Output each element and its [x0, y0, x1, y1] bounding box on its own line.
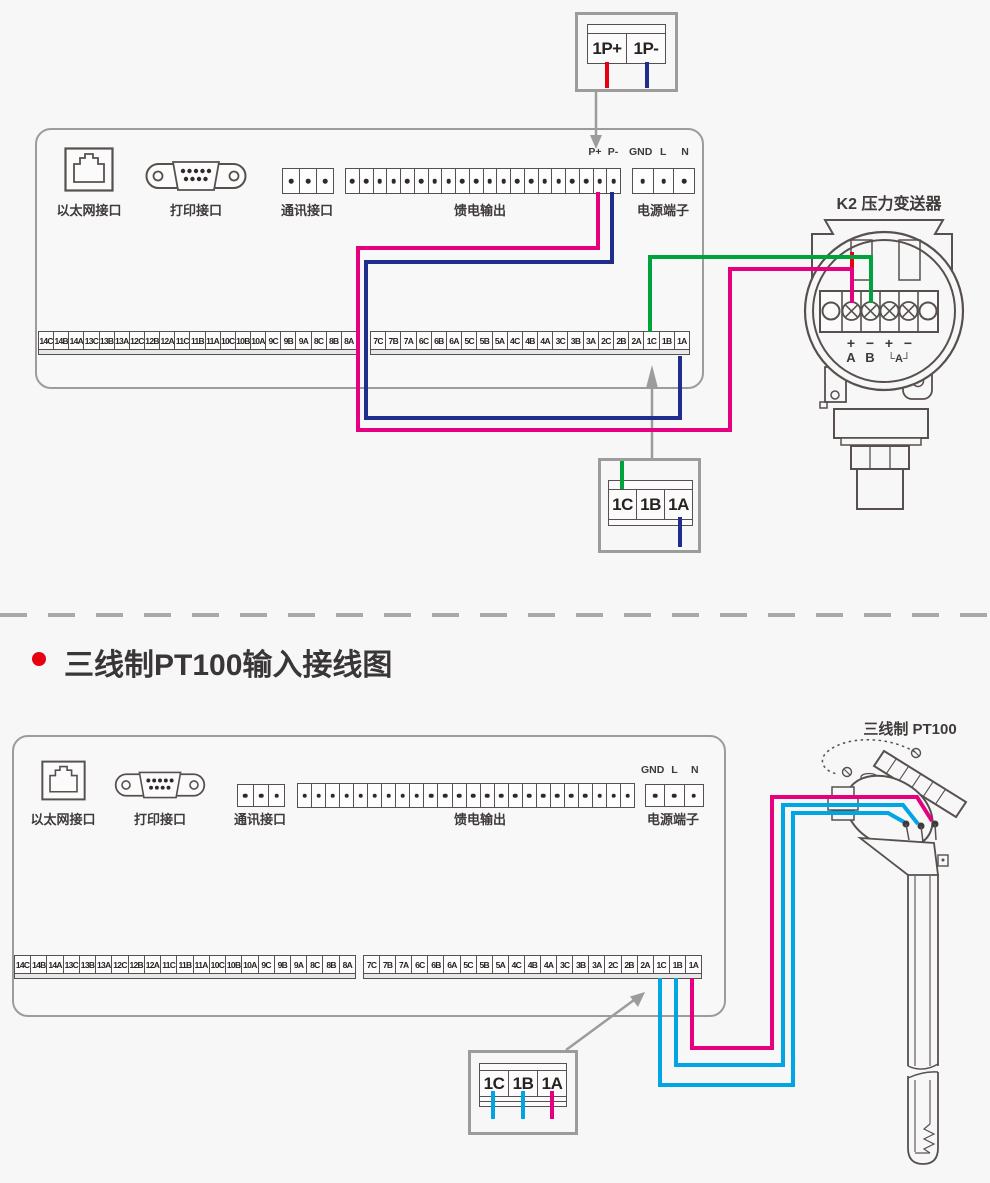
terminal-cell: 10A: [242, 956, 258, 973]
section-title: 三线制PT100输入接线图: [64, 640, 392, 684]
terminal-dot-cell: [410, 784, 424, 807]
channel1-box-table: 1C1B1A: [479, 1063, 567, 1107]
terminal-cell: 10A: [251, 332, 266, 349]
terminal-label-cell: 1A: [665, 490, 692, 519]
terminal-dot-cell: [424, 784, 438, 807]
terminal-cell: 3A: [589, 956, 605, 973]
terminal-cell: 5C: [461, 956, 477, 973]
power-terminal-header: GND L N: [641, 764, 705, 776]
neutral-label: N: [685, 764, 705, 776]
strip-foot: [371, 349, 689, 354]
channel-terminal-strip-right-top: 7C7B7A6C6B6A5C5B5A4C4B4A3C3B3A2C2B2A1C1B…: [370, 331, 690, 355]
terminal-cell: 10C: [210, 956, 226, 973]
polarity-label: −: [904, 335, 912, 351]
terminal-cell: 4A: [538, 332, 553, 349]
terminal-dot-cell: [593, 784, 607, 807]
terminal-label-cell: 1P+: [588, 34, 627, 63]
terminal-dot-cell: [470, 169, 484, 193]
signal-box-table: 1P+1P-: [587, 24, 666, 64]
terminal-cell: 13A: [115, 332, 130, 349]
transmitter-screw-slots: [845, 305, 915, 318]
terminal-cell: 4B: [523, 332, 538, 349]
terminal-cell: 7A: [396, 956, 412, 973]
transmitter-screw-terminals: [843, 302, 918, 320]
terminal-cell: 7B: [386, 332, 401, 349]
terminal-dot-cell: [665, 785, 684, 806]
terminal-dot-cell: [674, 169, 694, 193]
terminal-cell: 12B: [145, 332, 160, 349]
power-terminal-label: 电源端子: [613, 200, 713, 219]
comm-terminal-block-bottom: [237, 784, 285, 807]
terminal-cell: 3B: [573, 956, 589, 973]
terminal-cell: 9A: [291, 956, 307, 973]
pt100-sensor-drawing: [822, 740, 966, 1164]
terminal-dot-cell: [354, 784, 368, 807]
terminal-dot-cell: [537, 784, 551, 807]
terminal-cell: 10B: [236, 332, 251, 349]
terminal-dot-cell: [387, 169, 401, 193]
terminal-cell: 8C: [312, 332, 327, 349]
terminal-cell: 13C: [84, 332, 99, 349]
terminal-dot-cell: [298, 784, 312, 807]
terminal-dot-cell: [646, 785, 665, 806]
terminal-cell: 12B: [129, 956, 145, 973]
terminal-cell: 4C: [509, 956, 525, 973]
terminal-dot-cell: [552, 169, 566, 193]
terminal-cell: 10C: [221, 332, 236, 349]
strip-foot: [364, 973, 701, 978]
channel1-box-cells: 1C1B1A: [479, 1070, 567, 1097]
table-footer-band: [608, 520, 693, 526]
terminal-cell: 13A: [96, 956, 112, 973]
terminal-dot-cell: [579, 784, 593, 807]
terminal-cell: 2A: [629, 332, 644, 349]
terminal-cell: 8B: [327, 332, 342, 349]
terminal-dot-cell: [511, 169, 525, 193]
terminal-dot-cell: [580, 169, 594, 193]
terminal-cell: 11C: [161, 956, 177, 973]
terminal-cell: 4B: [525, 956, 541, 973]
table-footer-band: [479, 1102, 567, 1107]
signal-box-cells: 1P+1P-: [587, 33, 666, 64]
section-divider: [0, 613, 990, 617]
feed-output-label: 馈电输出: [430, 809, 530, 828]
terminal-dot-cell: [312, 784, 326, 807]
terminal-dot-cell: [481, 784, 495, 807]
terminal-cell: 5B: [477, 956, 493, 973]
feed-output-label: 馈电输出: [430, 200, 530, 219]
terminal-cell: 3C: [557, 956, 573, 973]
ethernet-port-icon: [64, 147, 114, 192]
terminal-cell: 8C: [307, 956, 323, 973]
ethernet-port-label: 以太网接口: [39, 200, 139, 219]
terminal-cell: 11B: [177, 956, 193, 973]
terminal-cell: 1B: [670, 956, 686, 973]
line-label: L: [664, 764, 684, 776]
terminal-cell: 14B: [31, 956, 47, 973]
terminal-cell: 7B: [380, 956, 396, 973]
printer-port-label: 打印接口: [146, 200, 246, 219]
channel1-junction-box-top: 1C1B1A: [598, 458, 701, 553]
wire-1a-to-pt100-magenta: [692, 797, 932, 1048]
terminal-cell: 10B: [226, 956, 242, 973]
terminal-dot-cell: [415, 169, 429, 193]
terminal-dot-cell: [360, 169, 374, 193]
terminal-dot-cell: [326, 784, 340, 807]
terminal-cell: 6C: [412, 956, 428, 973]
polarity-label: −: [866, 335, 874, 351]
terminal-cell: 5C: [462, 332, 477, 349]
terminal-cell: 9B: [281, 332, 296, 349]
terminal-cell: 12A: [145, 956, 161, 973]
terminal-dot-cell: [317, 169, 333, 193]
feed-output-terminal-strip-bottom: [297, 783, 635, 808]
terminal-dot-cell: [685, 785, 703, 806]
terminal-cell: 6C: [417, 332, 432, 349]
strip-foot: [15, 973, 355, 978]
terminal-dot-cell: [566, 169, 580, 193]
wiring-diagram-canvas: 1P+1P- 以太网接口 打印接口 通讯接口 馈电输出 P+ P- GND L …: [0, 0, 990, 1183]
channel-terminal-strip-right-bottom: 7C7B7A6C6B6A5C5B5A4C4B4A3C3B3A2C2B2A1C1B…: [363, 955, 702, 979]
terminal-cell: 4C: [508, 332, 523, 349]
terminal-cell: 12A: [160, 332, 175, 349]
terminal-dot-cell: [283, 169, 300, 193]
pt100-sensor-title: 三线制 PT100: [835, 718, 985, 739]
pressure-signal-junction-box: 1P+1P-: [575, 12, 678, 92]
terminal-cell: 6A: [444, 956, 460, 973]
terminal-dot-cell: [340, 784, 354, 807]
strip-cells: 14C14B14A13C13B13A12C12B12A11C11B11A10C1…: [39, 332, 356, 349]
section-bullet: [32, 652, 46, 666]
neutral-label: N: [674, 146, 696, 158]
terminal-cell: 7A: [401, 332, 416, 349]
terminal-cell: 2A: [638, 956, 654, 973]
terminal-label-cell: 1P-: [627, 34, 665, 63]
terminal-cell: 2B: [622, 956, 638, 973]
comm-port-label: 通讯接口: [257, 200, 357, 219]
terminal-dot-cell: [509, 784, 523, 807]
terminal-cell: 3C: [553, 332, 568, 349]
p-minus-label: P-: [604, 146, 622, 158]
terminal-dot-cell: [438, 784, 452, 807]
terminal-dot-cell: [607, 784, 621, 807]
terminal-cell: 12C: [112, 956, 128, 973]
terminal-cell: 1A: [686, 956, 701, 973]
power-terminal-label: 电源端子: [623, 809, 723, 828]
terminal-dot-cell: [401, 169, 415, 193]
terminal-cell: 5B: [477, 332, 492, 349]
table-header-band: [587, 24, 666, 33]
terminal-dot-cell: [621, 784, 634, 807]
channel1-junction-box-bottom: 1C1B1A: [468, 1050, 578, 1135]
terminal-cell: 1C: [654, 956, 670, 973]
terminal-cell: 13B: [100, 332, 115, 349]
terminal-cell: 3B: [568, 332, 583, 349]
terminal-cell: 12C: [130, 332, 145, 349]
terminal-dot-cell: [346, 169, 360, 193]
terminal-cell: 14A: [47, 956, 63, 973]
power-terminal-header: GND L N: [629, 146, 696, 158]
terminal-dot-cell: [300, 169, 317, 193]
terminal-dot-cell: [453, 784, 467, 807]
terminal-cell: 6B: [432, 332, 447, 349]
printer-port-label: 打印接口: [110, 809, 210, 828]
strip-cells: 7C7B7A6C6B6A5C5B5A4C4B4A3C3B3A2C2B2A1C1B…: [371, 332, 689, 349]
terminal-cell: 14A: [69, 332, 84, 349]
printer-port-icon: [145, 157, 247, 195]
terminal-dot-cell: [374, 169, 388, 193]
printer-port-icon: [109, 768, 211, 802]
terminal-cell: 14C: [39, 332, 54, 349]
channel-terminal-strip-left-bottom: 14C14B14A13C13B13A12C12B12A11C11B11A10C1…: [14, 955, 356, 979]
gnd-label: GND: [641, 764, 664, 776]
terminal-cell: 8A: [340, 956, 355, 973]
comm-port-label: 通讯接口: [210, 809, 310, 828]
comm-terminal-block-top: [282, 168, 334, 194]
terminal-dot-cell: [238, 785, 254, 806]
terminal-dot-cell: [484, 169, 498, 193]
table-header-band: [608, 480, 693, 489]
loop-power-terminal-labels: P+ P-: [586, 146, 622, 158]
terminal-dot-cell: [396, 784, 410, 807]
terminal-dot-cell: [539, 169, 553, 193]
terminal-label-cell: 1B: [637, 490, 665, 519]
terminal-dot-cell: [368, 784, 382, 807]
channel1-box-table: 1C1B1A: [608, 480, 693, 526]
ethernet-port-icon: [41, 757, 86, 804]
channel-label-b: B: [865, 350, 874, 365]
power-terminal-block-bottom: [645, 784, 704, 807]
terminal-dot-cell: [442, 169, 456, 193]
terminal-cell: 13B: [80, 956, 96, 973]
terminal-cell: 1B: [660, 332, 675, 349]
terminal-cell: 13C: [64, 956, 80, 973]
terminal-label-cell: 1C: [609, 490, 637, 519]
polarity-label: +: [847, 335, 855, 351]
terminal-cell: 6B: [428, 956, 444, 973]
strip-cells: 7C7B7A6C6B6A5C5B5A4C4B4A3C3B3A2C2B2A1C1B…: [364, 956, 701, 973]
line-label: L: [652, 146, 674, 158]
ethernet-port-label: 以太网接口: [13, 809, 113, 828]
terminal-dot-cell: [254, 785, 270, 806]
terminal-cell: 5A: [493, 332, 508, 349]
terminal-cell: 2C: [605, 956, 621, 973]
gnd-label: GND: [629, 146, 652, 158]
strip-cells: 14C14B14A13C13B13A12C12B12A11C11B11A10C1…: [15, 956, 355, 973]
terminal-cell: 1A: [675, 332, 689, 349]
terminal-cell: 6A: [447, 332, 462, 349]
terminal-cell: 7C: [364, 956, 380, 973]
pt100-head-terminal-dots: [903, 821, 939, 843]
terminal-cell: 2B: [614, 332, 629, 349]
transmitter-terminal-labels: + − + − A B └A┘: [846, 335, 912, 365]
terminal-dot-cell: [382, 784, 396, 807]
channel-terminal-strip-left-top: 14C14B14A13C13B13A12C12B12A11C11B11A10C1…: [38, 331, 357, 355]
channel-label-bracket: └A┘: [887, 351, 911, 365]
terminal-cell: 9B: [275, 956, 291, 973]
terminal-dot-cell: [654, 169, 675, 193]
terminal-dot-cell: [525, 169, 539, 193]
terminal-dot-cell: [607, 169, 620, 193]
terminal-cell: 4A: [541, 956, 557, 973]
terminal-cell: 9C: [259, 956, 275, 973]
terminal-cell: 3A: [584, 332, 599, 349]
feed-output-terminal-strip-top: [345, 168, 621, 194]
terminal-cell: 11B: [190, 332, 205, 349]
strip-foot: [39, 349, 356, 354]
terminal-cell: 9A: [296, 332, 311, 349]
terminal-dot-cell: [495, 784, 509, 807]
terminal-cell: 2C: [599, 332, 614, 349]
p-plus-label: P+: [586, 146, 604, 158]
terminal-dot-cell: [523, 784, 537, 807]
transmitter-title: K2 压力变送器: [799, 190, 979, 214]
terminal-dot-cell: [456, 169, 470, 193]
pressure-transmitter-drawing: [805, 220, 963, 509]
terminal-dot-cell: [467, 784, 481, 807]
terminal-dot-cell: [594, 169, 608, 193]
terminal-cell: 5A: [493, 956, 509, 973]
terminal-dot-cell: [269, 785, 284, 806]
terminal-dot-cell: [429, 169, 443, 193]
power-terminal-block-top: [632, 168, 695, 194]
terminal-label-cell: 1A: [538, 1071, 566, 1096]
terminal-cell: 14C: [15, 956, 31, 973]
terminal-cell: 7C: [371, 332, 386, 349]
terminal-cell: 9C: [266, 332, 281, 349]
channel1-box-cells: 1C1B1A: [608, 489, 693, 520]
terminal-dot-cell: [497, 169, 511, 193]
terminal-cell: 14B: [54, 332, 69, 349]
terminal-cell: 1C: [644, 332, 659, 349]
terminal-cell: 11A: [206, 332, 221, 349]
terminal-label-cell: 1C: [480, 1071, 509, 1096]
terminal-cell: 11C: [175, 332, 190, 349]
table-header-band: [479, 1063, 567, 1070]
terminal-label-cell: 1B: [509, 1071, 538, 1096]
terminal-cell: 11A: [194, 956, 210, 973]
terminal-cell: 8A: [342, 332, 356, 349]
terminal-dot-cell: [551, 784, 565, 807]
channel-label-a: A: [846, 350, 856, 365]
terminal-cell: 8B: [323, 956, 339, 973]
terminal-dot-cell: [633, 169, 654, 193]
terminal-dot-cell: [565, 784, 579, 807]
polarity-label: +: [885, 335, 893, 351]
